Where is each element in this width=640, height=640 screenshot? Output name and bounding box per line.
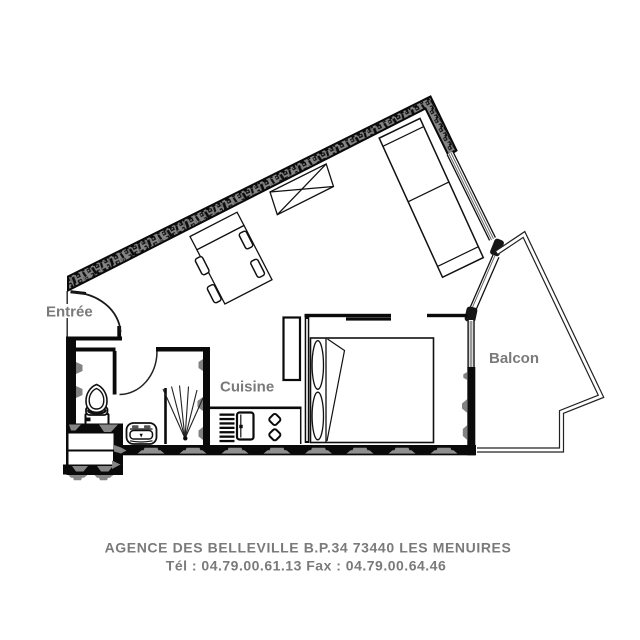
svg-text:Balcon: Balcon <box>489 350 539 367</box>
svg-text:Tél : 04.79.00.61.13 Fax : 04: Tél : 04.79.00.61.13 Fax : 04.79.00.64.4… <box>166 558 446 574</box>
svg-text:Entrée: Entrée <box>46 304 93 321</box>
svg-text:Cuisine: Cuisine <box>220 379 274 396</box>
svg-text:AGENCE DES BELLEVILLE B.P.34 7: AGENCE DES BELLEVILLE B.P.34 73440 LES M… <box>105 540 512 556</box>
